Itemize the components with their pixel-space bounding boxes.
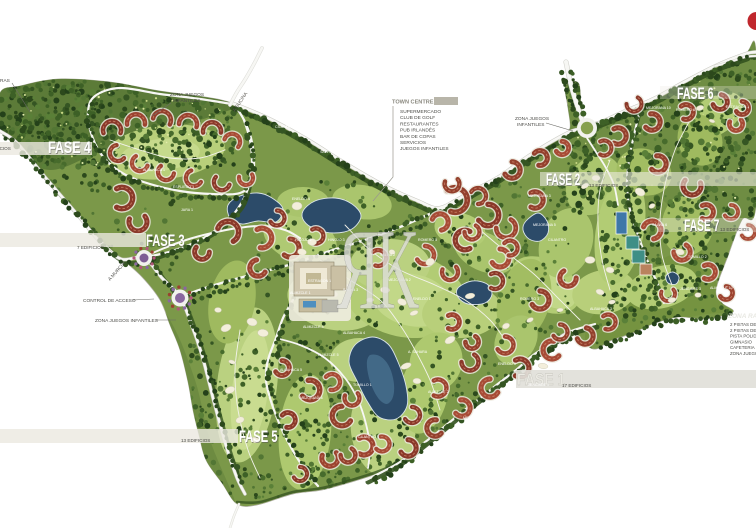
svg-text:INFANTILES: INFANTILES [517,122,544,128]
svg-text:TOMILLO 1: TOMILLO 1 [353,383,372,387]
svg-text:ENELDO 3: ENELDO 3 [498,362,516,366]
svg-text:INFANTILES: INFANTILES [173,98,200,104]
svg-text:MEJORANA 5: MEJORANA 5 [533,223,556,227]
svg-text:ALBAHACA 5: ALBAHACA 5 [280,368,302,372]
svg-text:ZONA JUEGOS INFANTILES: ZONA JUEGOS INFANTILES [95,318,158,324]
svg-text:SALVIA 6: SALVIA 6 [652,223,667,227]
svg-text:ROMERO 6: ROMERO 6 [676,108,695,112]
svg-text:A. SAHARA: A. SAHARA [408,350,428,354]
svg-text:HINOJO 2: HINOJO 2 [295,238,312,242]
svg-text:13 EDIFICIOS: 13 EDIFICIOS [589,183,618,188]
svg-text:SALVIA: SALVIA [320,150,333,154]
svg-text:ENELDO 4: ENELDO 4 [292,197,310,201]
svg-text:ESTRAGON 1: ESTRAGON 1 [726,105,749,109]
svg-text:GIMNASIO: GIMNASIO [730,339,753,344]
svg-text:CONTROL DE ACCESO: CONTROL DE ACCESO [83,298,136,304]
svg-text:FASE 4: FASE 4 [48,139,91,157]
svg-text:ENEBRO 1: ENEBRO 1 [336,115,354,119]
svg-text:ZONA JUEGOS: ZONA JUEGOS [730,351,756,356]
svg-text:K: K [376,205,420,333]
svg-text:MEJORANA 4: MEJORANA 4 [463,416,486,420]
svg-text:ZONA JUEGOS: ZONA JUEGOS [515,116,549,122]
svg-text:TOMILLO 2: TOMILLO 2 [688,255,707,259]
svg-text:SERVICIOS: SERVICIOS [400,140,426,146]
svg-text:ROMERO 5: ROMERO 5 [418,238,437,242]
svg-text:CAFETERIA: CAFETERIA [730,345,755,350]
svg-text:R: R [336,206,380,334]
svg-text:7 EDIFICIOS: 7 EDIFICIOS [77,245,104,250]
svg-text:FASE 2: FASE 2 [546,169,580,189]
svg-text:FASE 3: FASE 3 [146,232,185,251]
svg-text:9 EDIFICIOS: 9 EDIFICIOS [0,146,11,151]
svg-text:MEJORANA 10: MEJORANA 10 [646,106,671,110]
svg-text:ALMIZCLE 4: ALMIZCLE 4 [303,325,324,329]
svg-text:ESTRAGON 1: ESTRAGON 1 [308,279,331,283]
svg-text:LAUREL 1: LAUREL 1 [458,111,475,115]
svg-text:FASE 6: FASE 6 [677,85,714,104]
svg-text:ZONA JUEGOS: ZONA JUEGOS [170,92,204,98]
svg-text:ALMIZCLE 2: ALMIZCLE 2 [428,390,449,394]
svg-text:JUEGOS INFANTILES: JUEGOS INFANTILES [400,146,449,152]
svg-text:ESPLIEGO 1: ESPLIEGO 1 [173,185,194,189]
svg-text:ALMIZCLE 1: ALMIZCLE 1 [290,291,311,295]
svg-text:ALMIZCLE 10: ALMIZCLE 10 [710,286,733,290]
svg-text:SUPERMERCADO: SUPERMERCADO [400,109,441,115]
svg-text:RESTAURANTES: RESTAURANTES [400,121,439,127]
svg-text:RAS: RAS [0,78,10,84]
svg-text:TOWN CENTRE: TOWN CENTRE [392,100,434,106]
svg-text:MEJORANA 6: MEJORANA 6 [300,396,323,400]
svg-text:AJEDREA 1: AJEDREA 1 [418,164,437,168]
svg-text:CILANTRO 1: CILANTRO 1 [275,125,296,129]
svg-text:JARA 1: JARA 1 [181,208,193,212]
svg-text:PISTA POLIDEPORTIVA: PISTA POLIDEPORTIVA [730,334,756,339]
svg-text:ALMIZCLE 5: ALMIZCLE 5 [318,353,339,357]
svg-text:2 PISTAS DE TENIS: 2 PISTAS DE TENIS [730,322,756,327]
svg-text:13 EDIFICIOS: 13 EDIFICIOS [720,227,749,232]
svg-text:ALBAHACA 3: ALBAHACA 3 [590,307,612,311]
svg-text:CLUB DE GOLF: CLUB DE GOLF [400,115,435,121]
svg-text:MEJORANA 3: MEJORANA 3 [528,194,551,198]
svg-text:ALBAHACA 1: ALBAHACA 1 [143,168,165,172]
svg-text:BAR DE COPAS: BAR DE COPAS [400,134,436,140]
svg-text:ROMERO 3: ROMERO 3 [520,297,539,301]
svg-text:ZONA RAQUETA: ZONA RAQUETA [727,313,756,320]
svg-text:CILANTRO 5: CILANTRO 5 [358,435,379,439]
svg-text:FASE 7: FASE 7 [684,215,719,234]
svg-text:PUB IRLANDÉS: PUB IRLANDÉS [400,127,435,134]
svg-text:17 EDIFICIOS: 17 EDIFICIOS [562,383,591,388]
svg-text:JENGIBRE 1: JENGIBRE 1 [528,383,549,387]
svg-text:13 EDIFICIOS: 13 EDIFICIOS [181,438,210,443]
svg-text:FASE 5: FASE 5 [239,428,278,447]
svg-text:2 PISTAS DE PADEL: 2 PISTAS DE PADEL [730,328,756,333]
svg-text:CILANTRO: CILANTRO [548,238,566,242]
svg-text:JENGIBRE 3: JENGIBRE 3 [680,287,701,291]
